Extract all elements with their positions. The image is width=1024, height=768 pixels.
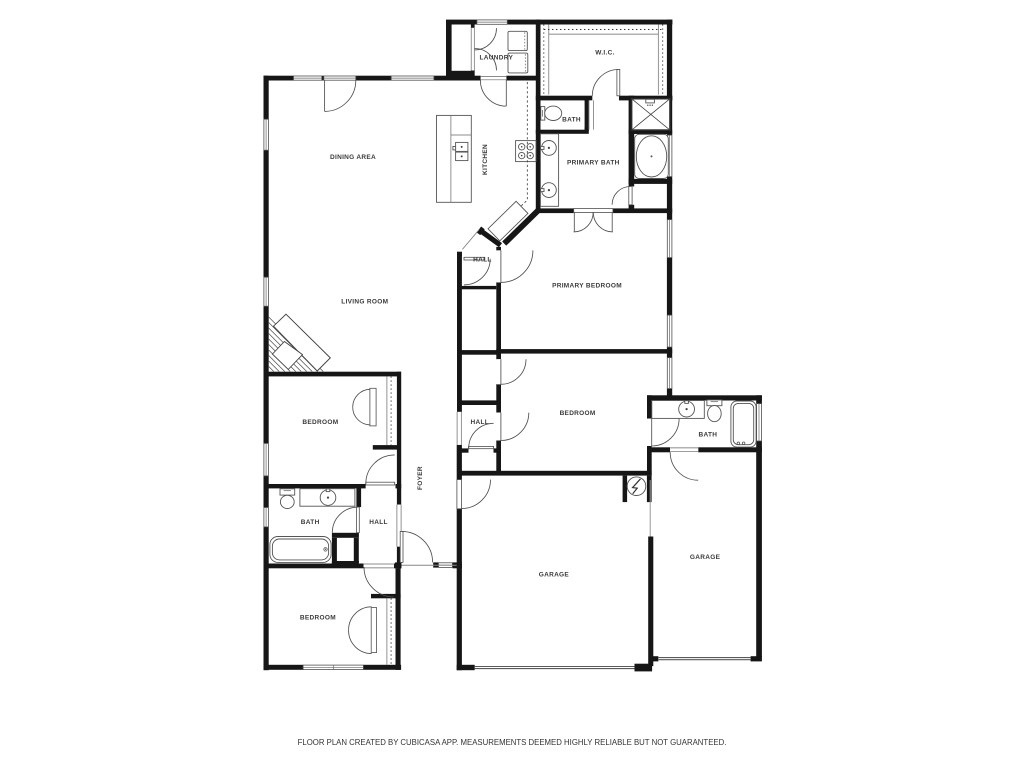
svg-text:BEDROOM: BEDROOM [560,410,596,417]
svg-text:DINING AREA: DINING AREA [330,154,376,161]
svg-text:BEDROOM: BEDROOM [300,615,336,622]
svg-text:BATH: BATH [301,519,320,526]
svg-text:FLOOR PLAN CREATED BY CUBICASA: FLOOR PLAN CREATED BY CUBICASA APP. MEAS… [298,738,727,747]
svg-text:PRIMARY BEDROOM: PRIMARY BEDROOM [552,283,622,290]
svg-text:HALL: HALL [369,519,388,526]
svg-text:W.I.C.: W.I.C. [595,50,615,57]
svg-text:KITCHEN: KITCHEN [482,144,489,175]
svg-text:BEDROOM: BEDROOM [302,419,338,426]
svg-text:LAUNDRY: LAUNDRY [479,54,513,61]
svg-text:GARAGE: GARAGE [690,554,721,561]
svg-text:HALL: HALL [473,257,492,264]
svg-text:FOYER: FOYER [417,466,424,490]
svg-text:BATH: BATH [699,432,718,439]
svg-text:PRIMARY BATH: PRIMARY BATH [567,160,620,167]
svg-text:BATH: BATH [562,117,581,124]
svg-text:GARAGE: GARAGE [539,572,570,579]
svg-text:HALL: HALL [471,419,490,426]
svg-text:LIVING ROOM: LIVING ROOM [341,299,388,306]
